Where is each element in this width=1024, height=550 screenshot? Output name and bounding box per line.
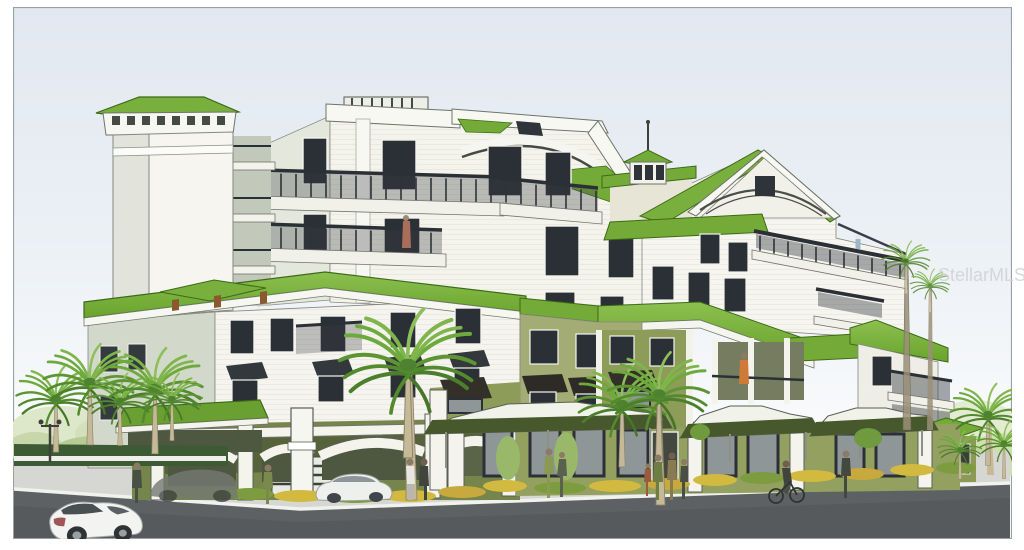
svg-text:StellarMLS: StellarMLS bbox=[938, 265, 1024, 285]
